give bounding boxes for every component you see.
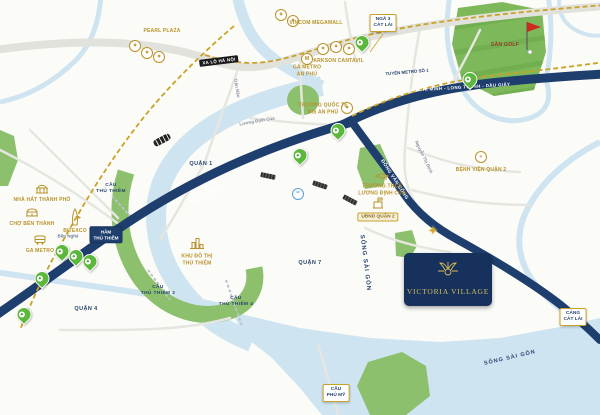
ctt-line2: THỦ THIÊM bbox=[96, 189, 126, 195]
map-canvas bbox=[0, 0, 600, 415]
bitexco-label: BITEXCO bbox=[63, 228, 87, 234]
ctt2-line2: THỦ THIÊM 2 bbox=[141, 291, 176, 297]
benh-vien-label: BỆNH VIỆN QUẬN 2 bbox=[456, 167, 507, 173]
cho-ben-thanh-label: CHỢ BẾN THÀNH bbox=[10, 221, 55, 227]
victoria-village-wordmark: VICTORIA VILLAGE bbox=[404, 287, 492, 296]
market-icon bbox=[24, 205, 40, 217]
ga-an-phu-line1: GA METRO bbox=[293, 65, 321, 72]
urban-area-icon bbox=[189, 237, 205, 250]
parkson-cantavil-label: PARKSON CANTAVIL bbox=[310, 58, 364, 64]
cang-line2: CÁT LÁI bbox=[564, 317, 583, 323]
truong-quoc-te-label: TRƯỜNG QUỐC TẾ BIS AN PHÚ bbox=[298, 103, 348, 116]
cau-thu-thiem-4-label: CẦU THỦ THIÊM 4 bbox=[219, 296, 254, 308]
metro-station-icon: M bbox=[301, 53, 313, 65]
vincom-megamall-label: VINCOM MEGAMALL bbox=[289, 20, 342, 26]
ham-thu-thiem-box: HẦM THỦ THIÊM bbox=[89, 226, 122, 243]
nga3-cat-lai-box: NGÃ 3 CÁT LÁI bbox=[370, 14, 397, 32]
ga-metro-label: GA METRO bbox=[26, 248, 54, 254]
ga-metro-an-phu-label: GA METRO AN PHÚ bbox=[293, 65, 321, 78]
ubnd-quan-2-label: UBND QUẬN 2 bbox=[357, 213, 398, 222]
project-location-star-icon: ✦ bbox=[428, 223, 439, 239]
hospital-cross-icon: + bbox=[475, 151, 487, 163]
theater-icon bbox=[34, 182, 50, 194]
nha-hat-label: NHÀ HÁT THÀNH PHỐ bbox=[13, 197, 70, 203]
district-1-label: QUẬN 1 bbox=[189, 161, 212, 167]
gift-icon: ✦ bbox=[343, 43, 355, 55]
victoria-village-card: VICTORIA VILLAGE bbox=[404, 253, 492, 306]
bitexco-tower-icon bbox=[69, 208, 81, 226]
nga3-line2: CÁT LÁI bbox=[374, 23, 393, 29]
kdt-line1: KHU ĐÔ THỊ bbox=[181, 254, 212, 261]
glasses-icon: ✦ bbox=[317, 43, 329, 55]
phu-my-line2: PHÚ MỸ bbox=[327, 393, 346, 399]
thcs-line1: TRƯỜNG THCS bbox=[358, 184, 406, 191]
cinema-icon: ✦ bbox=[153, 51, 165, 63]
ga-an-phu-line2: AN PHÚ bbox=[293, 71, 321, 78]
kdt-line2: THỦ THIÊM bbox=[181, 260, 212, 267]
mall-icon: ✦ bbox=[275, 9, 287, 21]
bag-icon: ✦ bbox=[330, 41, 342, 53]
bus-icon bbox=[33, 235, 47, 246]
cang-cat-lai-box: CẢNG CÁT LÁI bbox=[560, 308, 587, 326]
khu-do-thi-label: KHU ĐÔ THỊ THỦ THIÊM bbox=[181, 254, 212, 267]
san-golf-label: SÂN GOLF bbox=[491, 42, 519, 48]
ctt4-line2: THỦ THIÊM 4 bbox=[219, 302, 254, 308]
cau-thu-thiem-2-label: CẦU THỦ THIÊM 2 bbox=[141, 285, 176, 297]
government-building-icon bbox=[371, 197, 385, 209]
thcs-line2: LƯƠNG ĐỊNH CỦA bbox=[358, 190, 406, 197]
victoria-village-emblem-icon bbox=[404, 260, 492, 285]
graduation-cap-icon bbox=[375, 172, 389, 182]
tqt-line2: BIS AN PHÚ bbox=[298, 109, 348, 116]
tqt-line1: TRƯỜNG QUỐC TẾ bbox=[298, 103, 348, 110]
location-map: XA LỘ HÀ NỘI CAO TỐC HỒ CHÍ MINH - LONG … bbox=[0, 0, 600, 415]
cau-thu-thiem-label: CẦU THỦ THIÊM bbox=[96, 183, 126, 195]
cau-phu-my-box: CẦU PHÚ MỸ bbox=[323, 384, 350, 402]
shopping-icon: ✦ bbox=[129, 40, 141, 52]
ham-line2: THỦ THIÊM bbox=[93, 235, 118, 241]
ben-nghe-label: Bến Nghé bbox=[57, 234, 78, 239]
district-4-label: QUẬN 4 bbox=[74, 306, 97, 312]
dining-icon: ✦ bbox=[141, 47, 153, 59]
district-7-label: QUẬN 7 bbox=[298, 260, 321, 266]
truong-thcs-label: TRƯỜNG THCS LƯƠNG ĐỊNH CỦA bbox=[358, 184, 406, 197]
ferry-icon: ≈ bbox=[292, 188, 304, 200]
pearl-plaza-label: PEARL PLAZA bbox=[143, 28, 180, 34]
